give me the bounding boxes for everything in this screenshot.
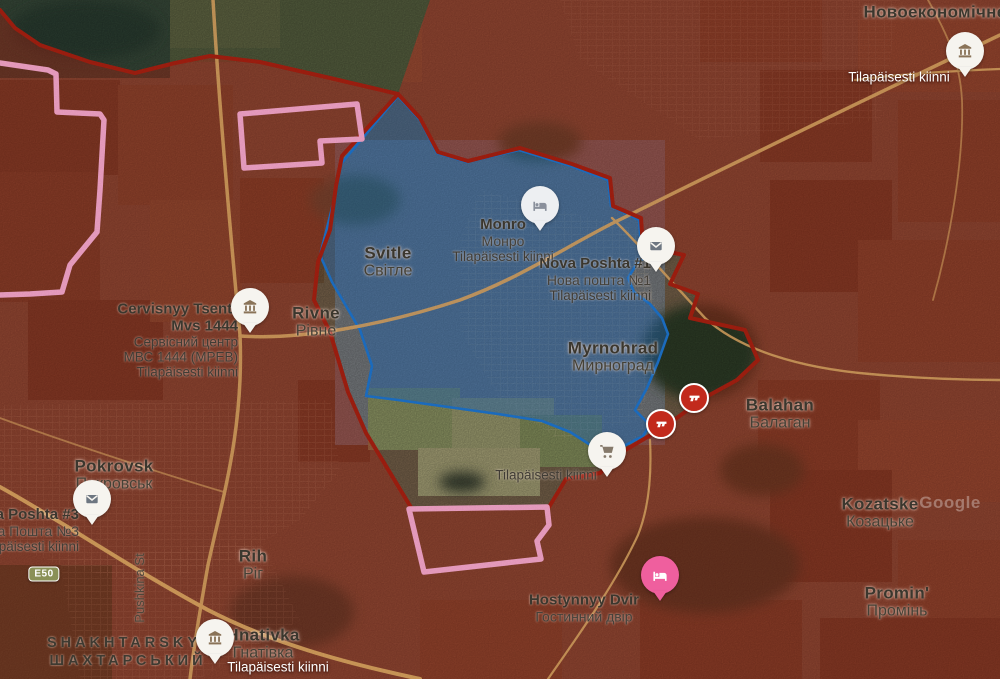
museum-pin-icon[interactable] (946, 32, 984, 77)
hotel-pin-monro-icon-tip (533, 221, 547, 231)
satellite-war-map[interactable]: НовоекономічнеTilapäisesti kiinniSvitleС… (0, 0, 1000, 679)
bank-pin-hnativka-icon[interactable] (196, 619, 234, 664)
gun-marker-south-icon[interactable] (646, 409, 676, 439)
bank-pin-cervisnyy-icon-circle (231, 288, 269, 326)
mail-pin-novaposhta3-icon-circle (73, 480, 111, 518)
map-canvas (0, 0, 1000, 679)
gun-marker-north-icon-circle (679, 383, 709, 413)
hotel-pin-monro-icon-circle (521, 186, 559, 224)
bank-pin-cervisnyy-icon[interactable] (231, 288, 269, 333)
mail-pin-novaposhta3-icon[interactable] (73, 480, 111, 525)
cart-pin-icon[interactable] (588, 432, 626, 477)
hotel-pin-hostynnyy-icon-circle (641, 556, 679, 594)
road-badge-e50: E50 (28, 567, 59, 582)
mail-pin-novaposhta3-icon-tip (85, 515, 99, 525)
mail-pin-novaposhta1-icon[interactable] (637, 227, 675, 272)
gun-marker-south-icon-circle (646, 409, 676, 439)
mail-pin-novaposhta1-icon-circle (637, 227, 675, 265)
museum-pin-icon-circle (946, 32, 984, 70)
bank-pin-hnativka-icon-circle (196, 619, 234, 657)
hotel-pin-monro-icon[interactable] (521, 186, 559, 231)
bank-pin-hnativka-icon-tip (208, 654, 222, 664)
bank-pin-cervisnyy-icon-tip (243, 323, 257, 333)
museum-pin-icon-tip (958, 67, 972, 77)
cart-pin-icon-tip (600, 467, 614, 477)
gun-marker-north-icon[interactable] (679, 383, 709, 413)
mail-pin-novaposhta1-icon-tip (649, 262, 663, 272)
hotel-pin-hostynnyy-icon[interactable] (641, 556, 679, 601)
hotel-pin-hostynnyy-icon-tip (653, 591, 667, 601)
cart-pin-icon-circle (588, 432, 626, 470)
